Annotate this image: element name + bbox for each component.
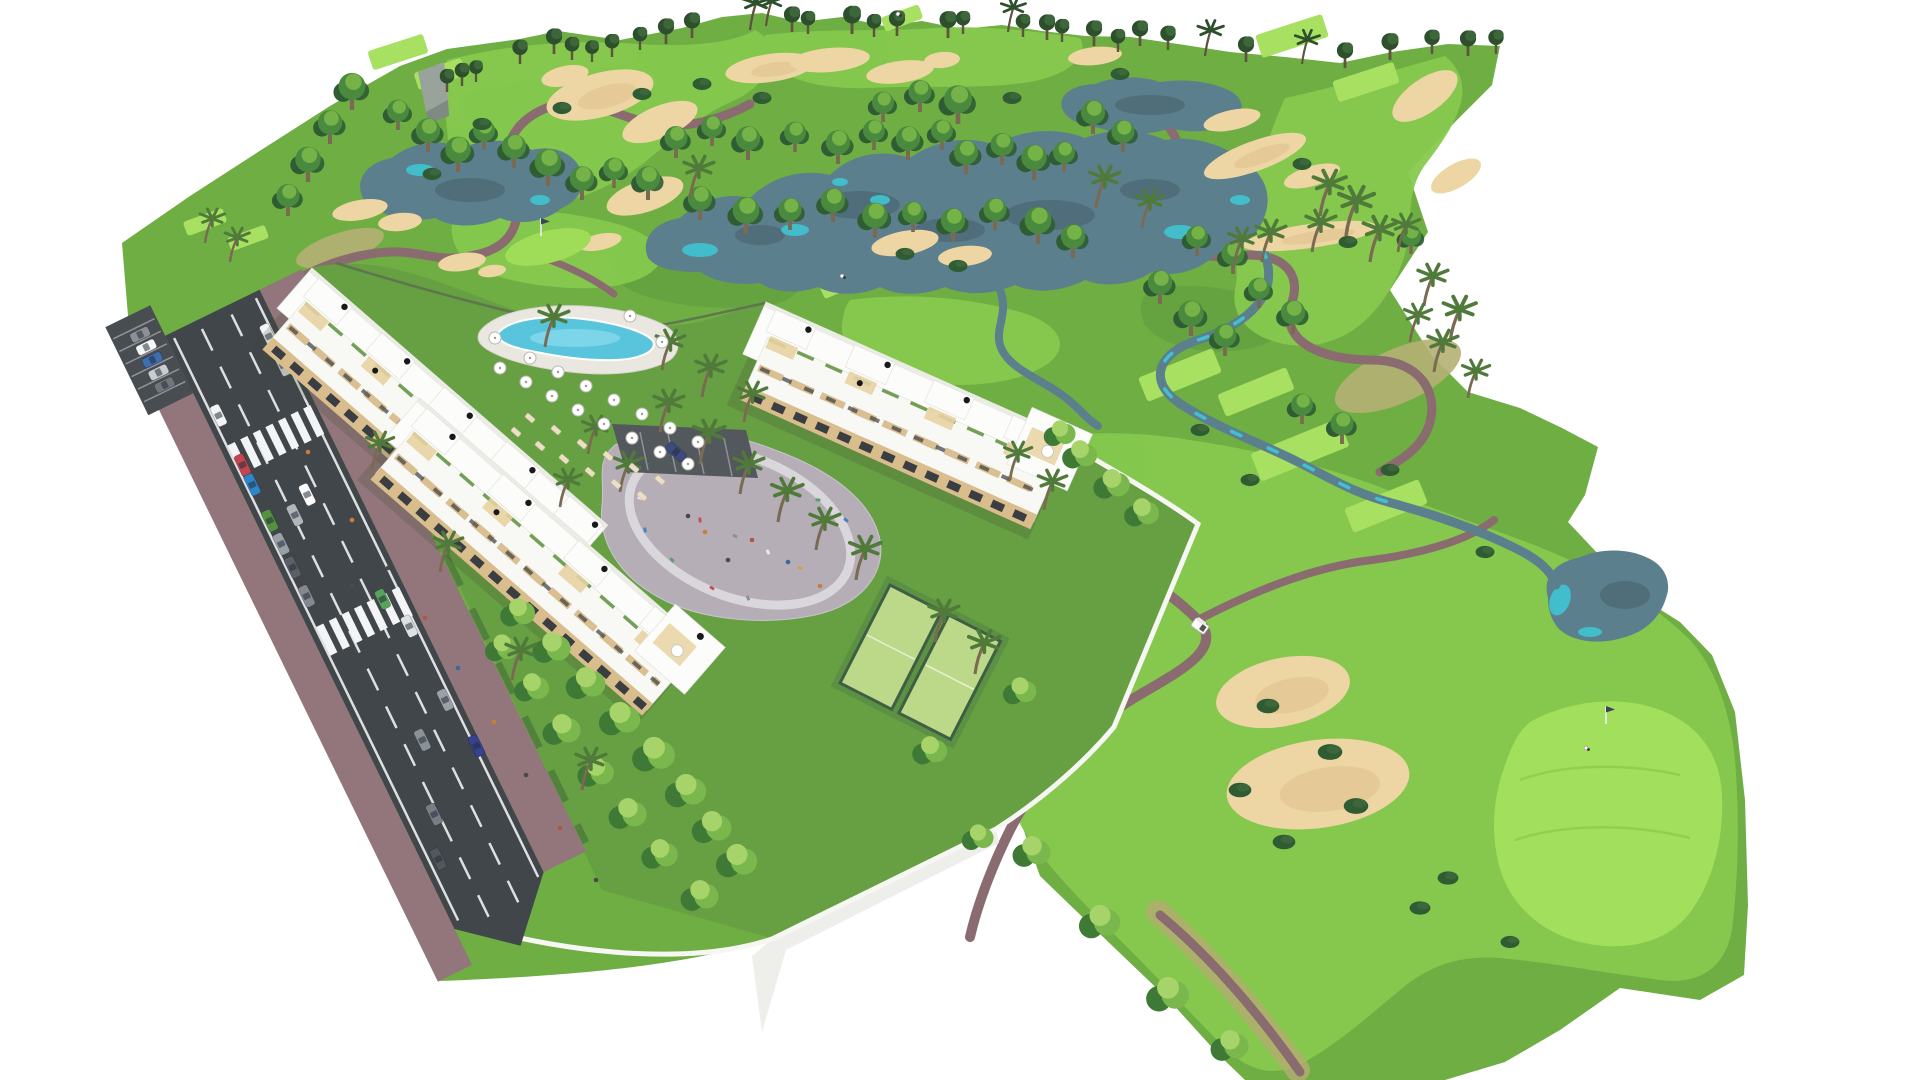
person — [703, 530, 708, 535]
person — [350, 584, 355, 589]
parasol — [489, 332, 501, 344]
parasol — [626, 432, 638, 444]
parasol — [654, 446, 666, 458]
person — [386, 566, 391, 571]
person — [423, 616, 428, 621]
tree — [1191, 424, 1210, 436]
sand-bunker — [1426, 152, 1486, 201]
parasol — [598, 418, 610, 430]
pool-highlight — [530, 329, 620, 347]
tree — [633, 88, 652, 100]
tree — [1418, 264, 1448, 306]
person — [594, 878, 599, 883]
tree — [473, 118, 492, 130]
aerial-render-svg — [0, 0, 1920, 1080]
parasol — [552, 366, 564, 378]
parasol — [494, 362, 506, 374]
exercise-equipment — [815, 498, 820, 501]
person — [492, 720, 497, 725]
person — [686, 514, 691, 519]
exercise-equipment — [643, 527, 647, 532]
parasol — [580, 380, 592, 392]
person — [726, 558, 731, 563]
tree — [1501, 936, 1520, 948]
tree — [1241, 474, 1260, 486]
tree — [896, 248, 915, 260]
tree — [1438, 871, 1459, 884]
person — [524, 773, 529, 778]
person — [558, 826, 563, 831]
tree — [1344, 798, 1369, 814]
person — [350, 518, 355, 523]
tree — [1257, 699, 1280, 714]
tree — [1381, 464, 1400, 476]
parasol — [608, 394, 620, 406]
parasol — [524, 352, 536, 364]
tree — [1229, 783, 1252, 798]
tree — [1003, 92, 1022, 104]
render-canvas — [0, 0, 1920, 1080]
parasol — [656, 336, 668, 348]
parasol — [636, 408, 648, 420]
parasol — [546, 390, 558, 402]
parasol — [520, 376, 532, 388]
tree — [1111, 68, 1130, 80]
putting-green-2 — [1494, 701, 1722, 946]
tree — [1410, 901, 1431, 914]
person — [306, 450, 311, 455]
tree — [693, 78, 712, 90]
tree — [1273, 835, 1296, 850]
tree — [553, 102, 572, 114]
parasol — [572, 404, 584, 416]
person — [818, 584, 823, 589]
parasol — [692, 436, 704, 448]
person — [786, 560, 791, 565]
parasol — [664, 422, 676, 434]
tree — [949, 260, 968, 272]
tree — [423, 168, 442, 180]
parasol — [624, 310, 636, 322]
tree — [753, 92, 772, 104]
person — [456, 666, 461, 671]
tree — [1318, 744, 1343, 760]
tree — [1339, 236, 1358, 248]
person — [750, 538, 755, 543]
tree — [1293, 158, 1312, 170]
tree — [1476, 546, 1495, 558]
